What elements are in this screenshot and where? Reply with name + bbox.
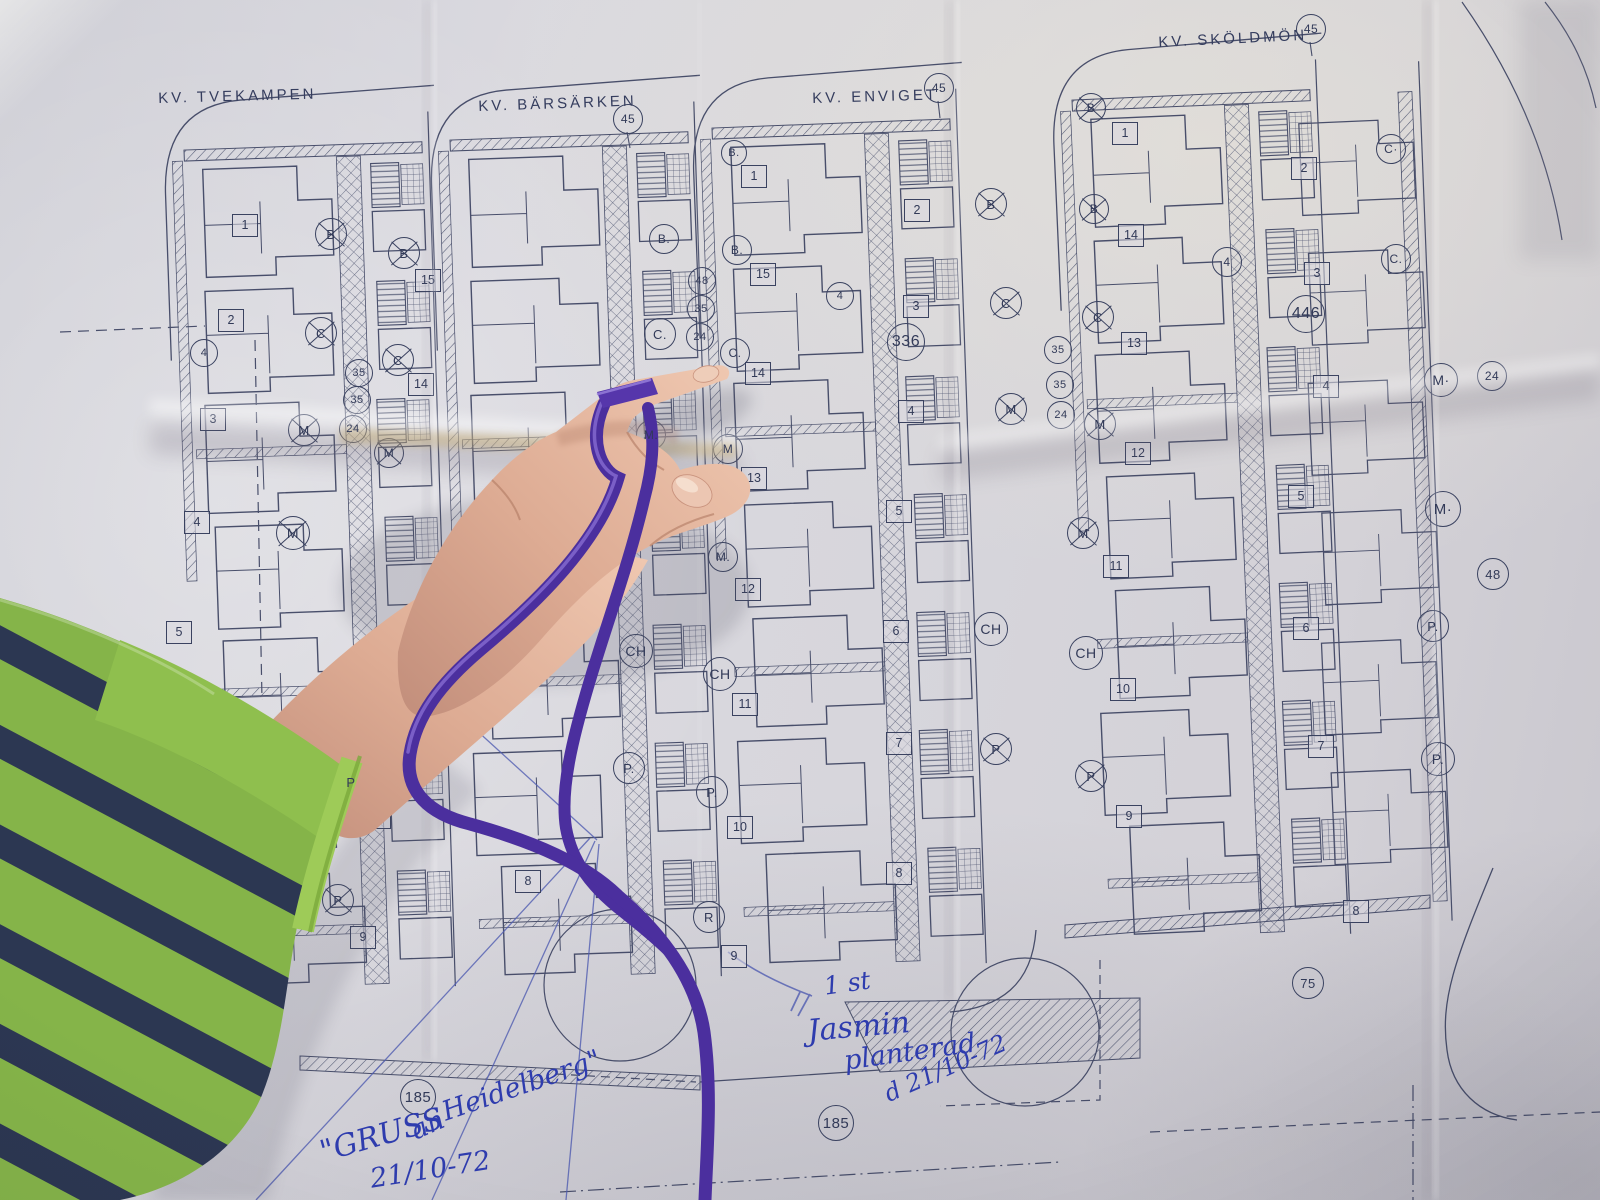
blueprint-paper — [0, 0, 1600, 1200]
photo-of-site-plan: KV. TVEKAMPEN KV. BÄRSÄRKEN KV. ENVIGET … — [0, 0, 1600, 1200]
